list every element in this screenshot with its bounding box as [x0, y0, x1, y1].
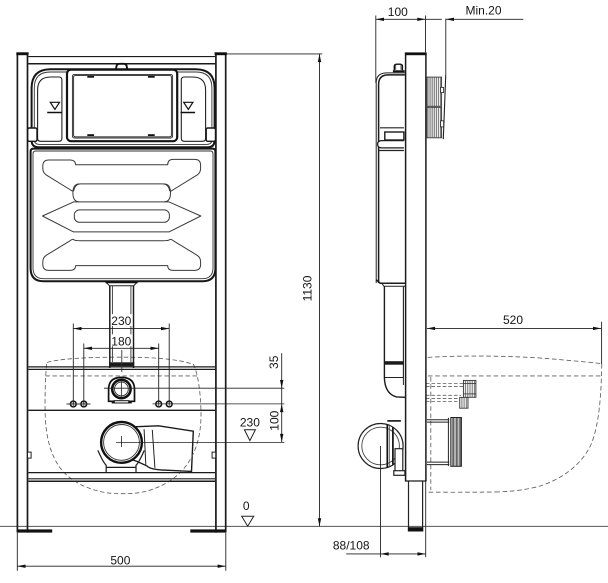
svg-text:230: 230 [111, 314, 131, 328]
svg-text:100: 100 [267, 410, 281, 430]
svg-text:230: 230 [240, 415, 260, 429]
svg-text:0: 0 [243, 499, 250, 513]
svg-text:500: 500 [110, 553, 130, 567]
svg-text:100: 100 [388, 5, 408, 19]
svg-text:Min.20: Min.20 [465, 3, 501, 17]
svg-text:35: 35 [267, 355, 281, 369]
svg-text:1130: 1130 [300, 275, 314, 301]
svg-text:88/108: 88/108 [333, 539, 370, 553]
svg-text:180: 180 [111, 334, 131, 348]
svg-text:520: 520 [503, 313, 523, 327]
